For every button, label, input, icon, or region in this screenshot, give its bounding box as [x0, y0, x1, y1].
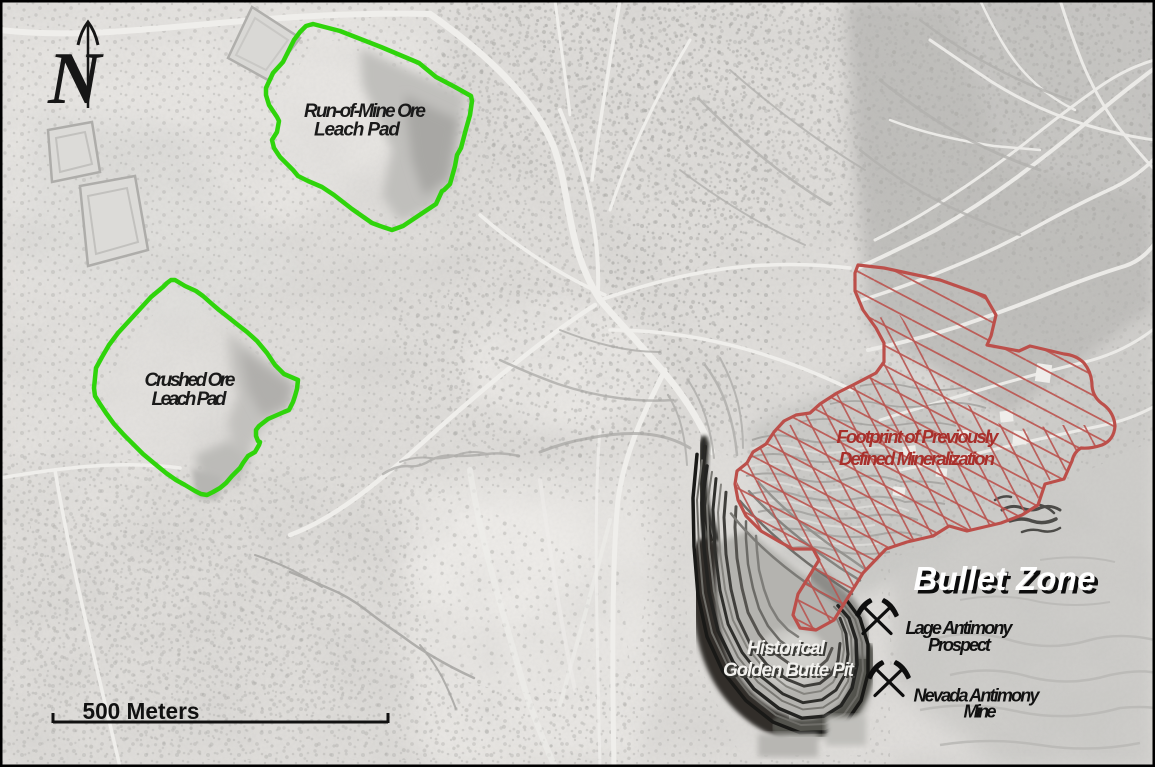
svg-text:Footprint of Previously: Footprint of Previously	[837, 426, 1001, 447]
svg-text:Leach Pad: Leach Pad	[314, 120, 400, 141]
svg-text:Leach Pad: Leach Pad	[152, 389, 227, 410]
svg-text:Prospect: Prospect	[928, 635, 992, 655]
svg-text:N: N	[47, 38, 104, 120]
svg-text:Defined Mineralization: Defined Mineralization	[839, 448, 995, 469]
svg-text:500 Meters: 500 Meters	[83, 698, 200, 724]
svg-text:Bullet Zone: Bullet Zone	[914, 560, 1096, 597]
svg-text:Golden Butte Pit: Golden Butte Pit	[723, 660, 855, 681]
svg-text:Historical: Historical	[747, 638, 826, 659]
svg-text:Mine: Mine	[964, 702, 997, 722]
svg-text:Crushed Ore: Crushed Ore	[145, 370, 236, 391]
